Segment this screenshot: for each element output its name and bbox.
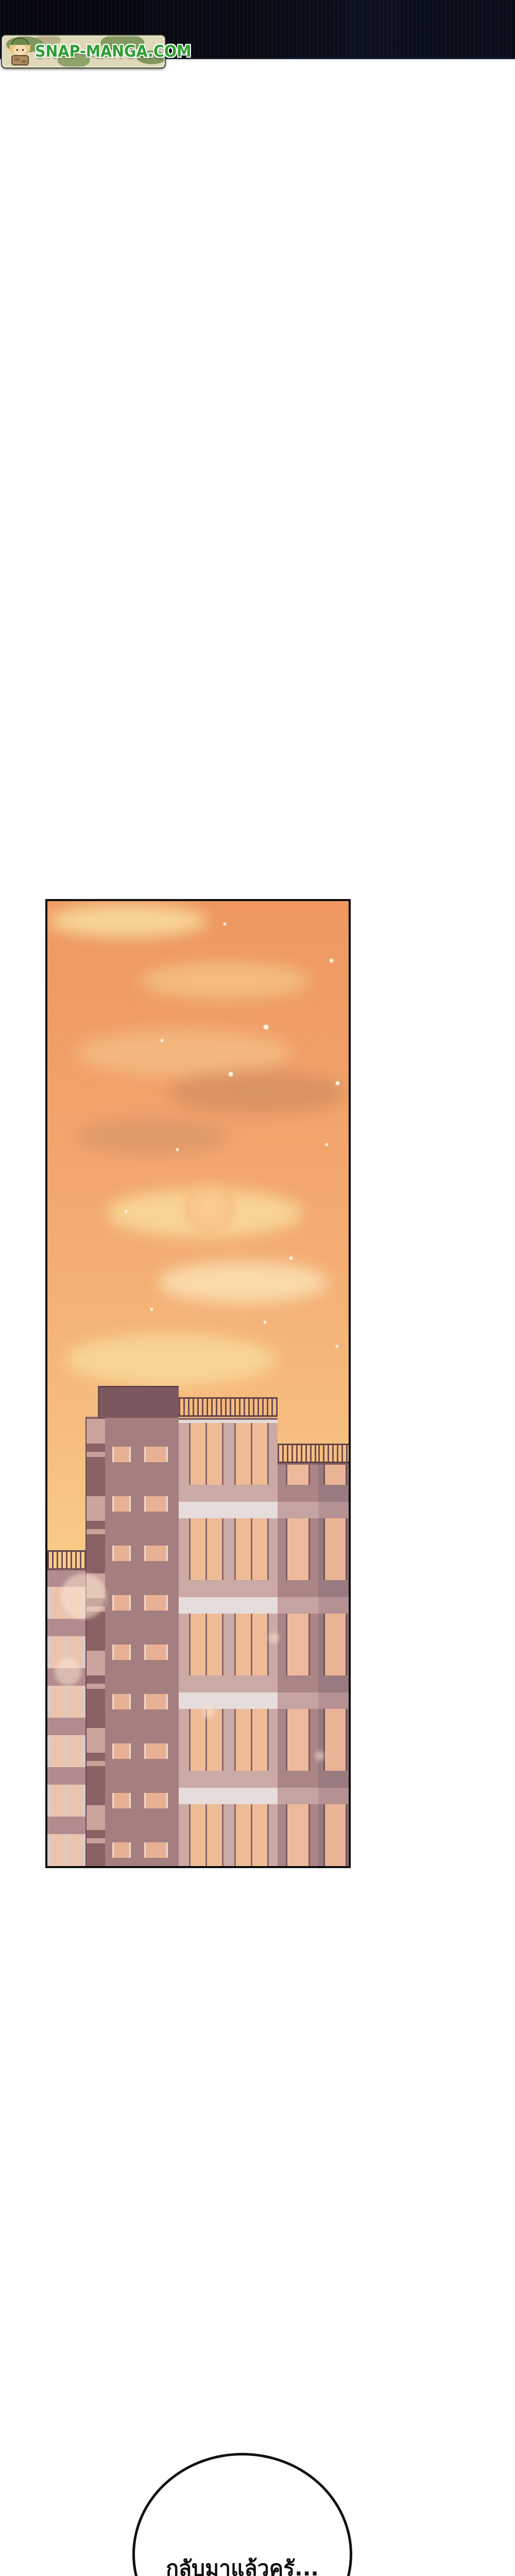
logo-text: SNAP-MANGA.COM xyxy=(35,42,194,61)
panel-sunset-cityscape xyxy=(45,899,351,1868)
mascot-eye xyxy=(16,49,18,51)
mascot-eye xyxy=(22,49,24,51)
window-light-flare xyxy=(202,1705,215,1718)
building-d xyxy=(318,1444,351,1866)
star xyxy=(176,1148,179,1151)
building-c xyxy=(278,1444,318,1866)
star xyxy=(289,1257,293,1260)
speech-bubble-text: กลับมาแล้วครั... xyxy=(166,2523,319,2576)
site-logo[interactable]: SNAP-MANGA.COM xyxy=(1,35,166,69)
cloud xyxy=(76,1117,230,1156)
logo-mascot-icon xyxy=(5,37,35,66)
cloud xyxy=(158,1262,328,1303)
rooftop-railing xyxy=(278,1444,318,1463)
rooftop-railing xyxy=(47,1550,85,1570)
building-d-facade xyxy=(318,1463,351,1866)
star xyxy=(161,1039,163,1042)
star xyxy=(336,1345,338,1348)
manga-reader-page: SNAP-MANGA.COM xyxy=(0,0,515,2576)
star xyxy=(336,1081,339,1085)
rooftop-railing xyxy=(318,1444,351,1463)
star xyxy=(264,1025,268,1029)
window-light-flare xyxy=(55,1658,81,1685)
mascot-face xyxy=(13,45,27,55)
cloud xyxy=(65,1334,277,1385)
building-b-facade xyxy=(179,1418,278,1866)
manga-strip: กลับมาแล้วครั... 끼이이아 xyxy=(0,0,515,2576)
mascot-body xyxy=(11,55,29,65)
rooftop-railing xyxy=(179,1397,278,1417)
star xyxy=(330,959,333,962)
star xyxy=(224,923,226,925)
building-a-stair-column xyxy=(85,1417,105,1866)
star xyxy=(150,1308,153,1311)
building-a-penthouse xyxy=(98,1386,179,1419)
building-c-facade xyxy=(278,1463,318,1866)
star xyxy=(325,1143,328,1146)
window-light-flare xyxy=(269,1633,279,1643)
star xyxy=(229,1072,233,1076)
sun-glow xyxy=(179,1176,241,1238)
cloud xyxy=(76,1030,292,1076)
building-a-facade xyxy=(105,1418,179,1866)
star xyxy=(125,1210,127,1213)
window-light-flare xyxy=(315,1751,324,1760)
building-b xyxy=(179,1397,278,1866)
cloud xyxy=(140,962,310,999)
cloud xyxy=(168,1071,346,1114)
cloud xyxy=(47,904,207,937)
window-light-flare xyxy=(61,1573,106,1619)
speech-bubble: กลับมาแล้วครั... xyxy=(132,2453,352,2576)
star xyxy=(264,1321,266,1324)
